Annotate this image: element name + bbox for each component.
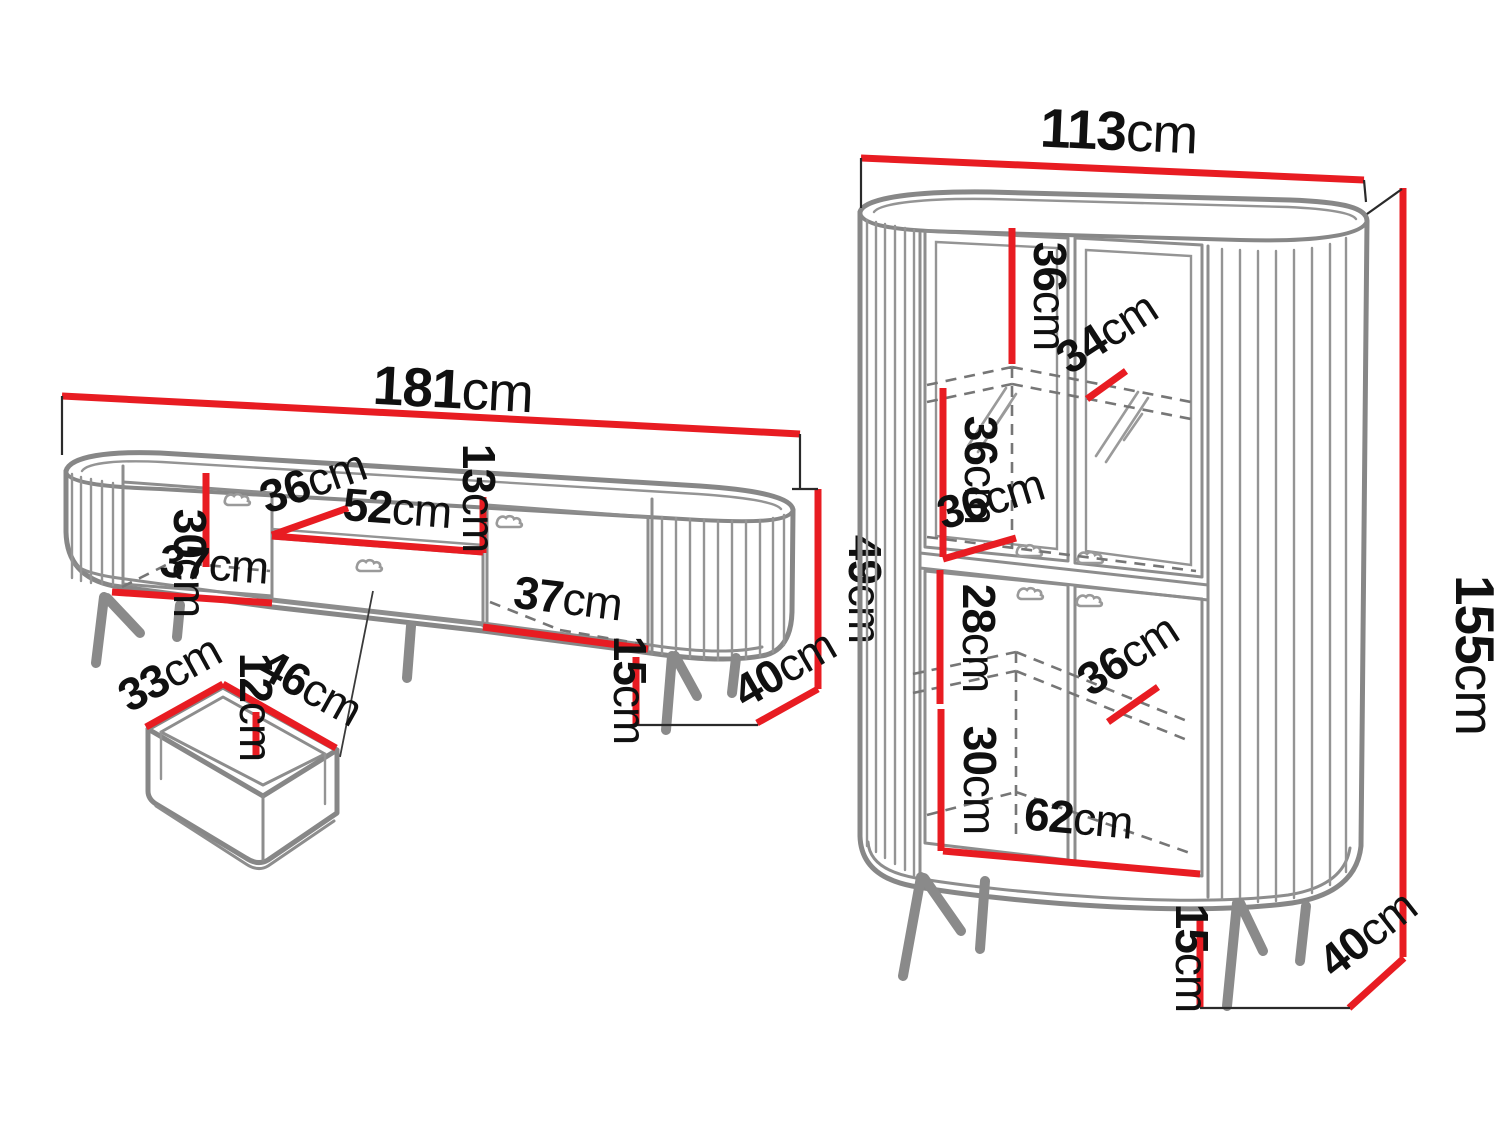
tv-left-width-label: 37cm [158, 534, 270, 593]
cabinet-lower-right-handle [1077, 595, 1102, 606]
cab-lower-height-label: 30cm [954, 726, 1006, 835]
tv-left-door-handle [225, 494, 250, 505]
tv-leg-front-left [96, 597, 140, 663]
cabinet-leg-back-right [1300, 906, 1306, 961]
dim-line-tv-niche-width [272, 536, 483, 552]
dim-line-cab-top-depth [1087, 371, 1126, 399]
tv-leg-height-label: 15cm [604, 636, 656, 745]
furniture-dimension-diagram: 181cm 30cm 36cm 52cm 13cm 37cm 37cm 49cm… [0, 0, 1500, 1125]
cab-inner-width-label: 62cm [1022, 787, 1135, 848]
cab-width-label: 113cm [1039, 96, 1199, 165]
drawer-detail-drawing: 33cm 46cm 12cm [109, 591, 373, 869]
cab-lower-depth-label: 36cm [1068, 603, 1187, 706]
cabinet-drawing: 113cm 36cm 34cm 36cm 36cm 28cm 36cm 30cm… [860, 96, 1500, 1012]
cab-lower-upper-height-label: 28cm [953, 584, 1005, 693]
cabinet-lower-left-handle [1018, 588, 1043, 599]
cabinet-leg-back-left [980, 881, 985, 949]
tv-leg-front-right [666, 656, 697, 730]
tv-right-cap-flutes [662, 515, 784, 660]
right-door-glass-reflections [1096, 392, 1148, 462]
tv-body-height-label: 49cm [839, 535, 891, 644]
dim-line-cab-inner-width [943, 851, 1200, 874]
tv-leg-middle [407, 626, 411, 678]
tv-right-width-label: 37cm [511, 566, 625, 631]
tv-niche-height-label: 13cm [453, 444, 505, 553]
cab-leg-height-label: 15cm [1166, 904, 1218, 1013]
cabinet-top-front-edge [860, 212, 1367, 240]
cab-height-label: 155cm [1444, 575, 1500, 735]
diagram-canvas: 181cm 30cm 36cm 52cm 13cm 37cm 37cm 49cm… [0, 0, 1500, 1125]
cabinet-leg-front-right [1227, 903, 1263, 1006]
cabinet-top [860, 192, 1367, 240]
tv-width-label: 181cm [371, 354, 534, 424]
drawer-width-label: 33cm [109, 624, 229, 722]
drawer-height-label: 12cm [230, 653, 282, 762]
tv-drawer-handle [357, 560, 382, 571]
cabinet-right-cap-flutes [1222, 238, 1346, 902]
tv-niche-width-label: 52cm [341, 478, 453, 538]
